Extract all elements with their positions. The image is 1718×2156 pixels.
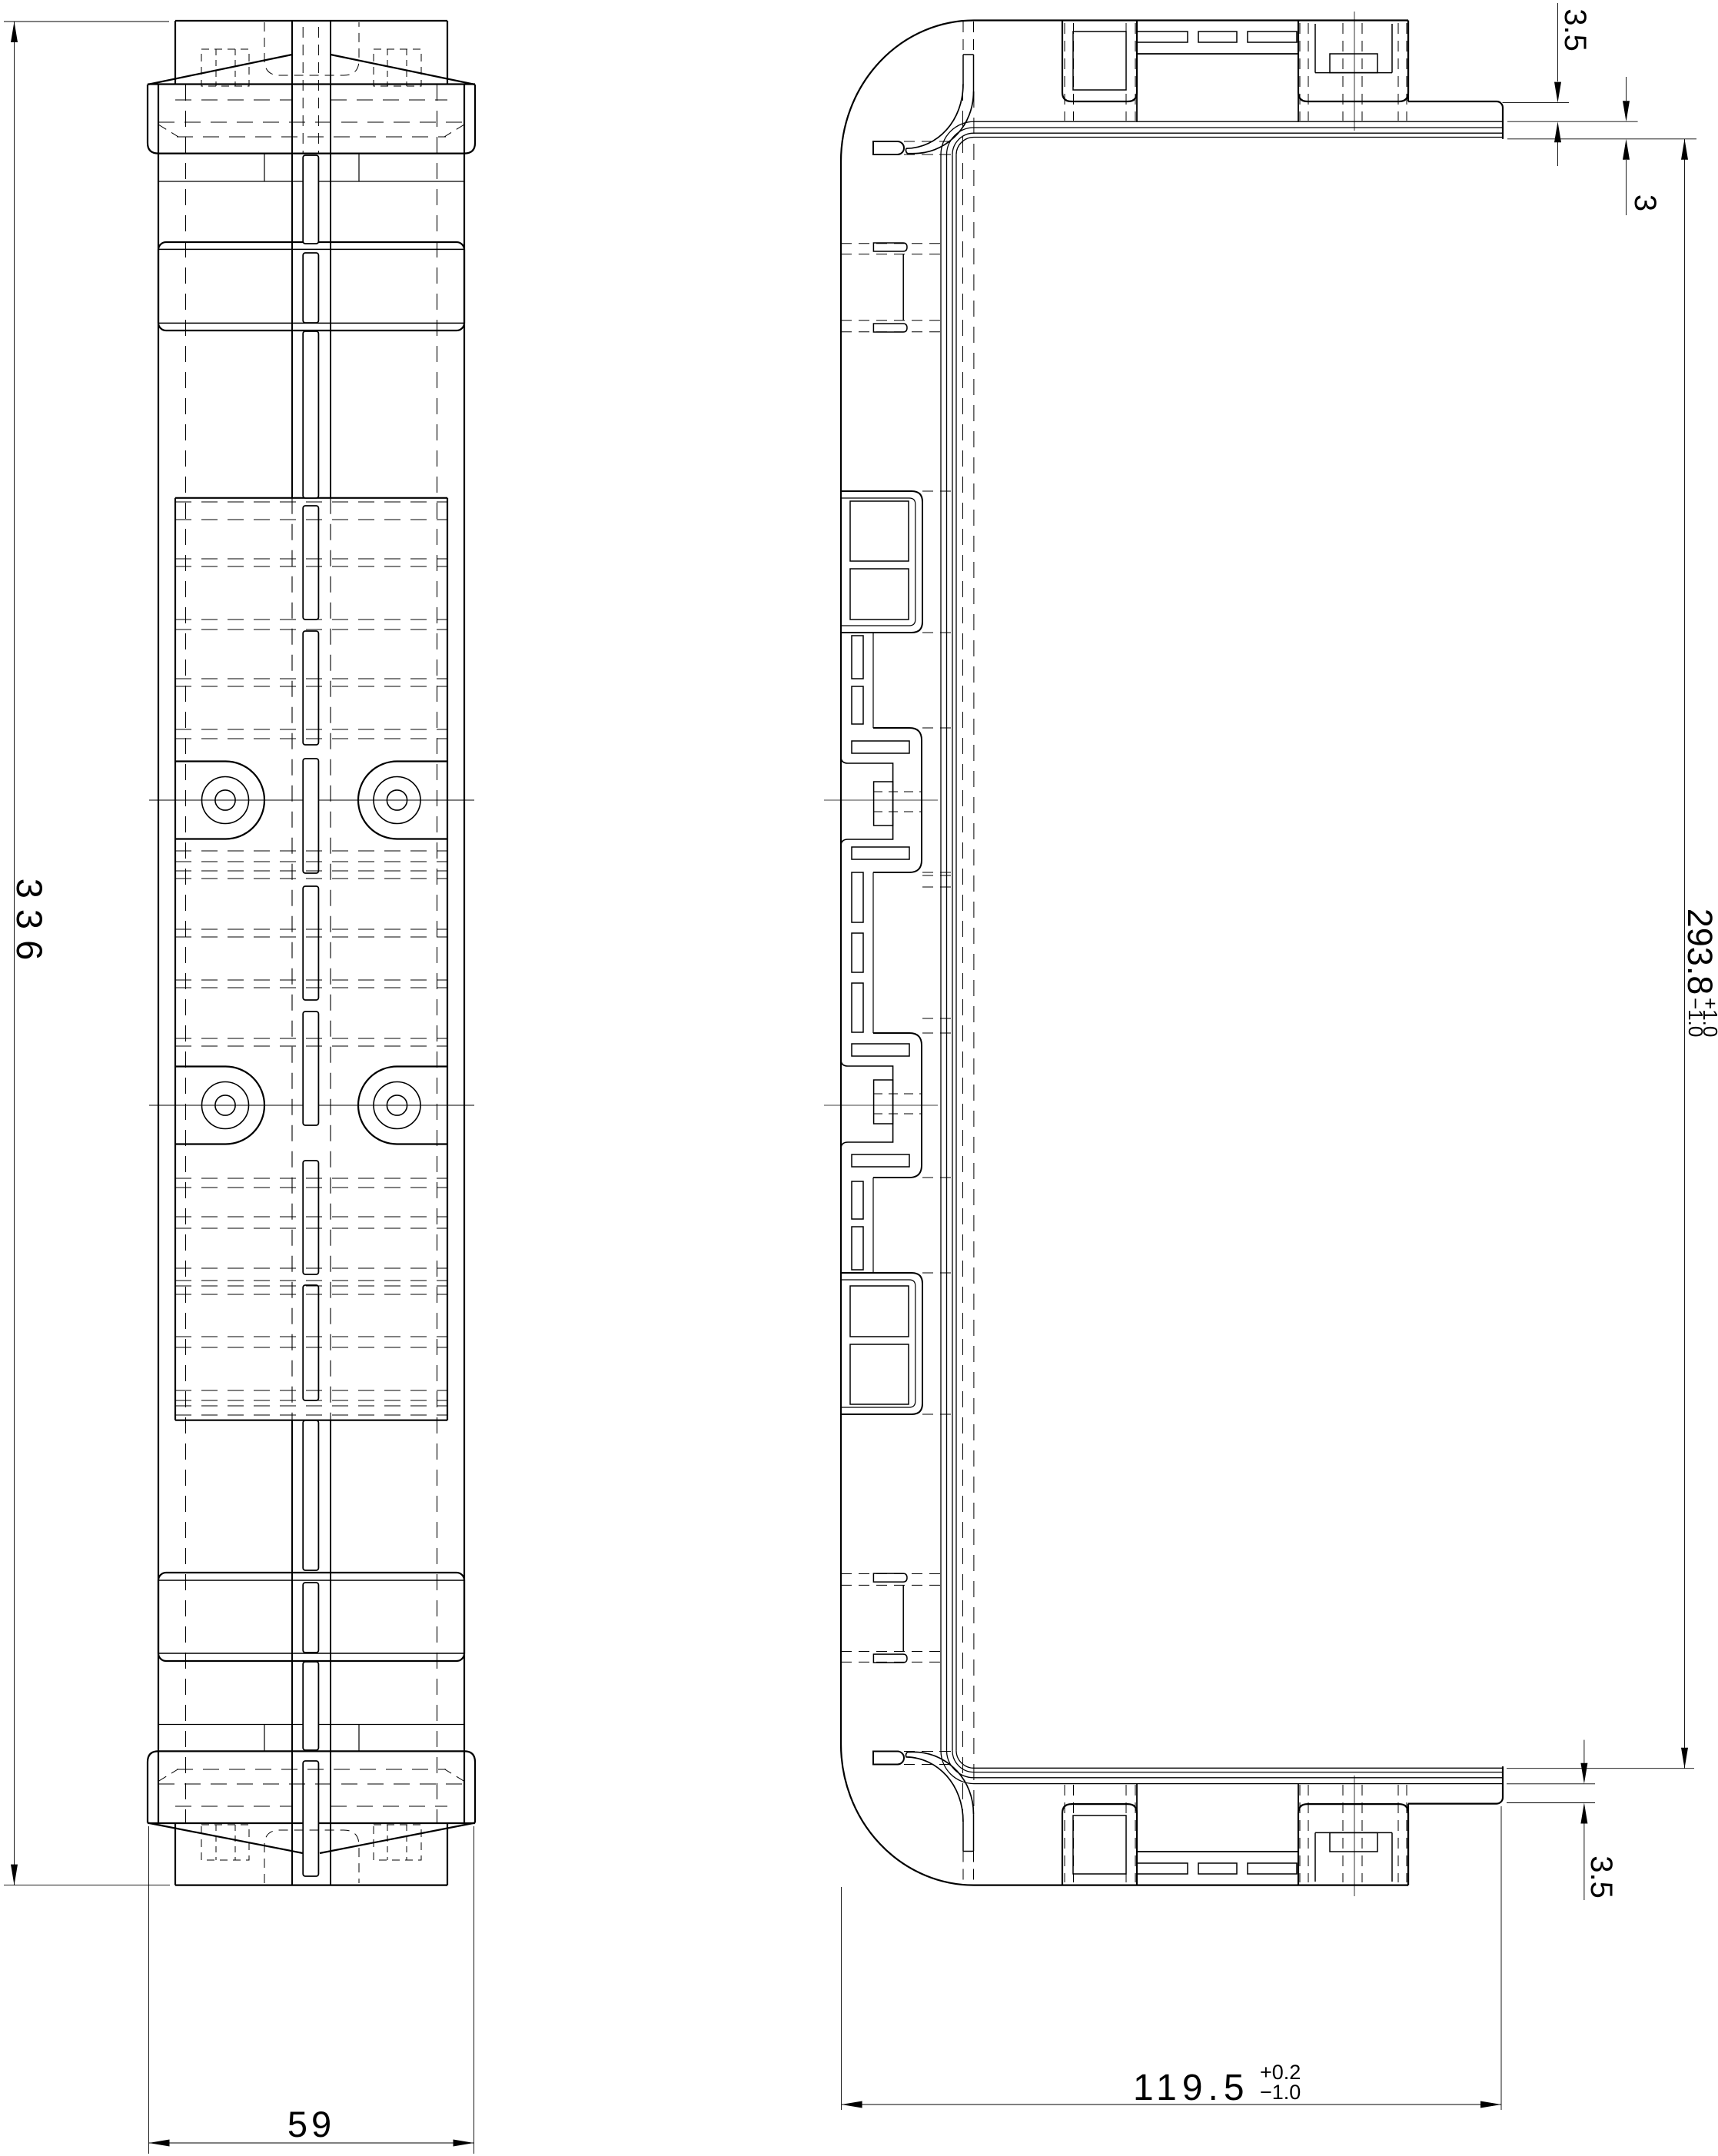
svg-text:3: 3 <box>1628 194 1662 211</box>
svg-text:3.5: 3.5 <box>1558 8 1592 51</box>
svg-text:59: 59 <box>287 2104 335 2144</box>
svg-text:−1.0: −1.0 <box>1260 2081 1301 2104</box>
svg-text:−1.0: −1.0 <box>1684 998 1707 1037</box>
svg-text:3.5: 3.5 <box>1584 1855 1618 1899</box>
svg-text:293.8: 293.8 <box>1680 909 1718 995</box>
svg-text:336: 336 <box>9 879 50 971</box>
svg-text:119.5: 119.5 <box>1133 2068 1250 2108</box>
